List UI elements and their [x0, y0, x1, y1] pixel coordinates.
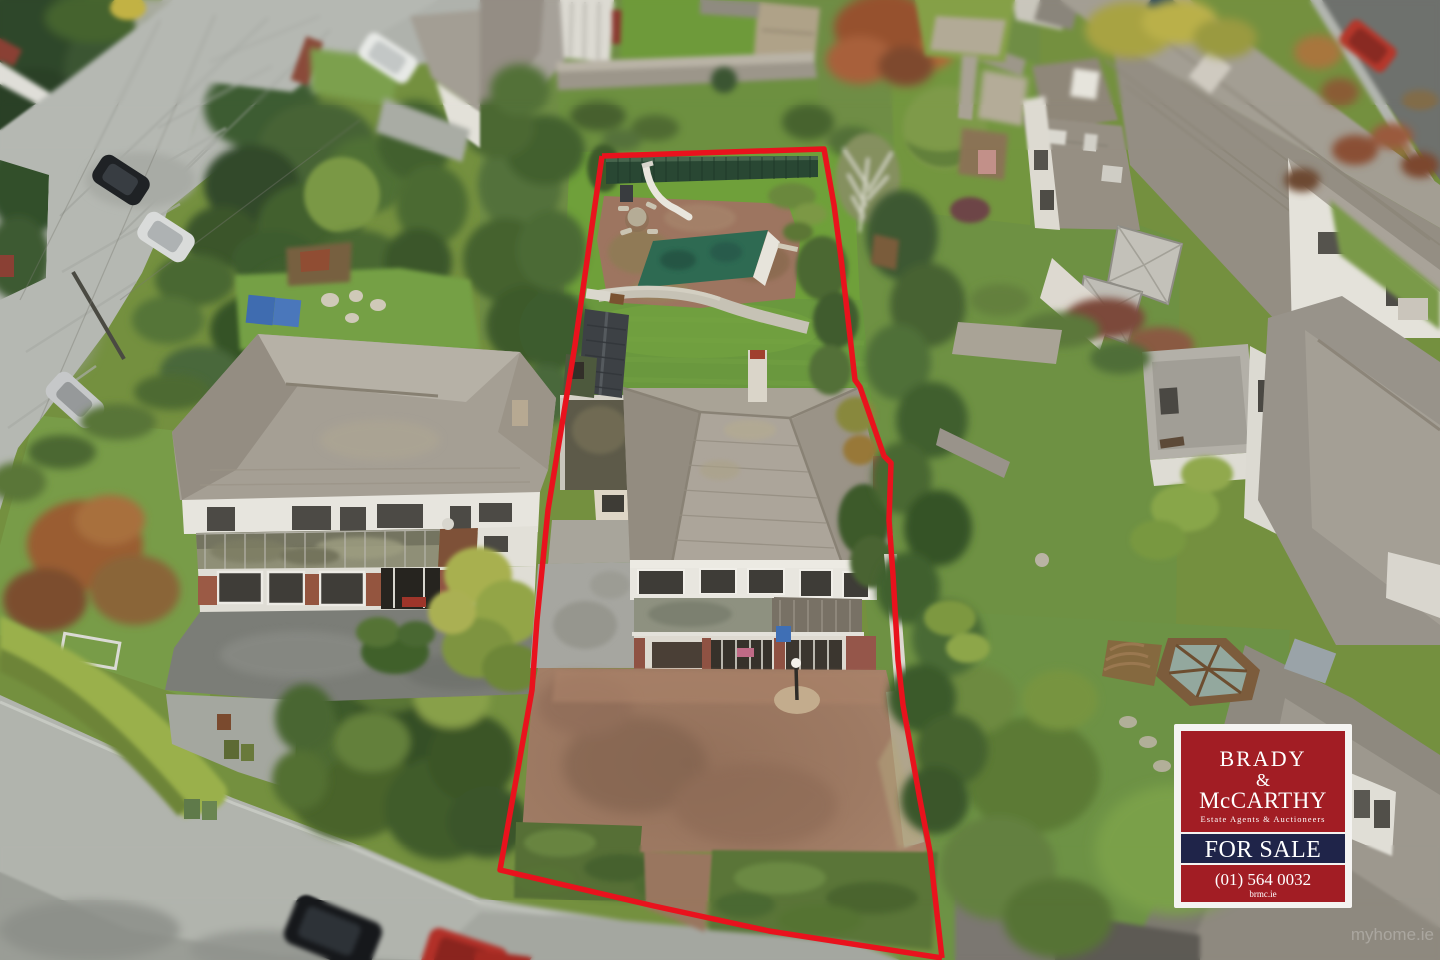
svg-text:(01) 564 0032: (01) 564 0032 — [1215, 870, 1311, 889]
svg-text:&: & — [1256, 770, 1270, 790]
svg-text:McCARTHY: McCARTHY — [1199, 788, 1327, 813]
svg-text:Estate Agents & Auctioneers: Estate Agents & Auctioneers — [1201, 814, 1326, 824]
svg-text:FOR SALE: FOR SALE — [1205, 837, 1322, 863]
svg-text:brmc.ie: brmc.ie — [1249, 889, 1276, 899]
svg-text:myhome.ie: myhome.ie — [1351, 925, 1434, 944]
svg-text:BRADY: BRADY — [1219, 746, 1306, 771]
